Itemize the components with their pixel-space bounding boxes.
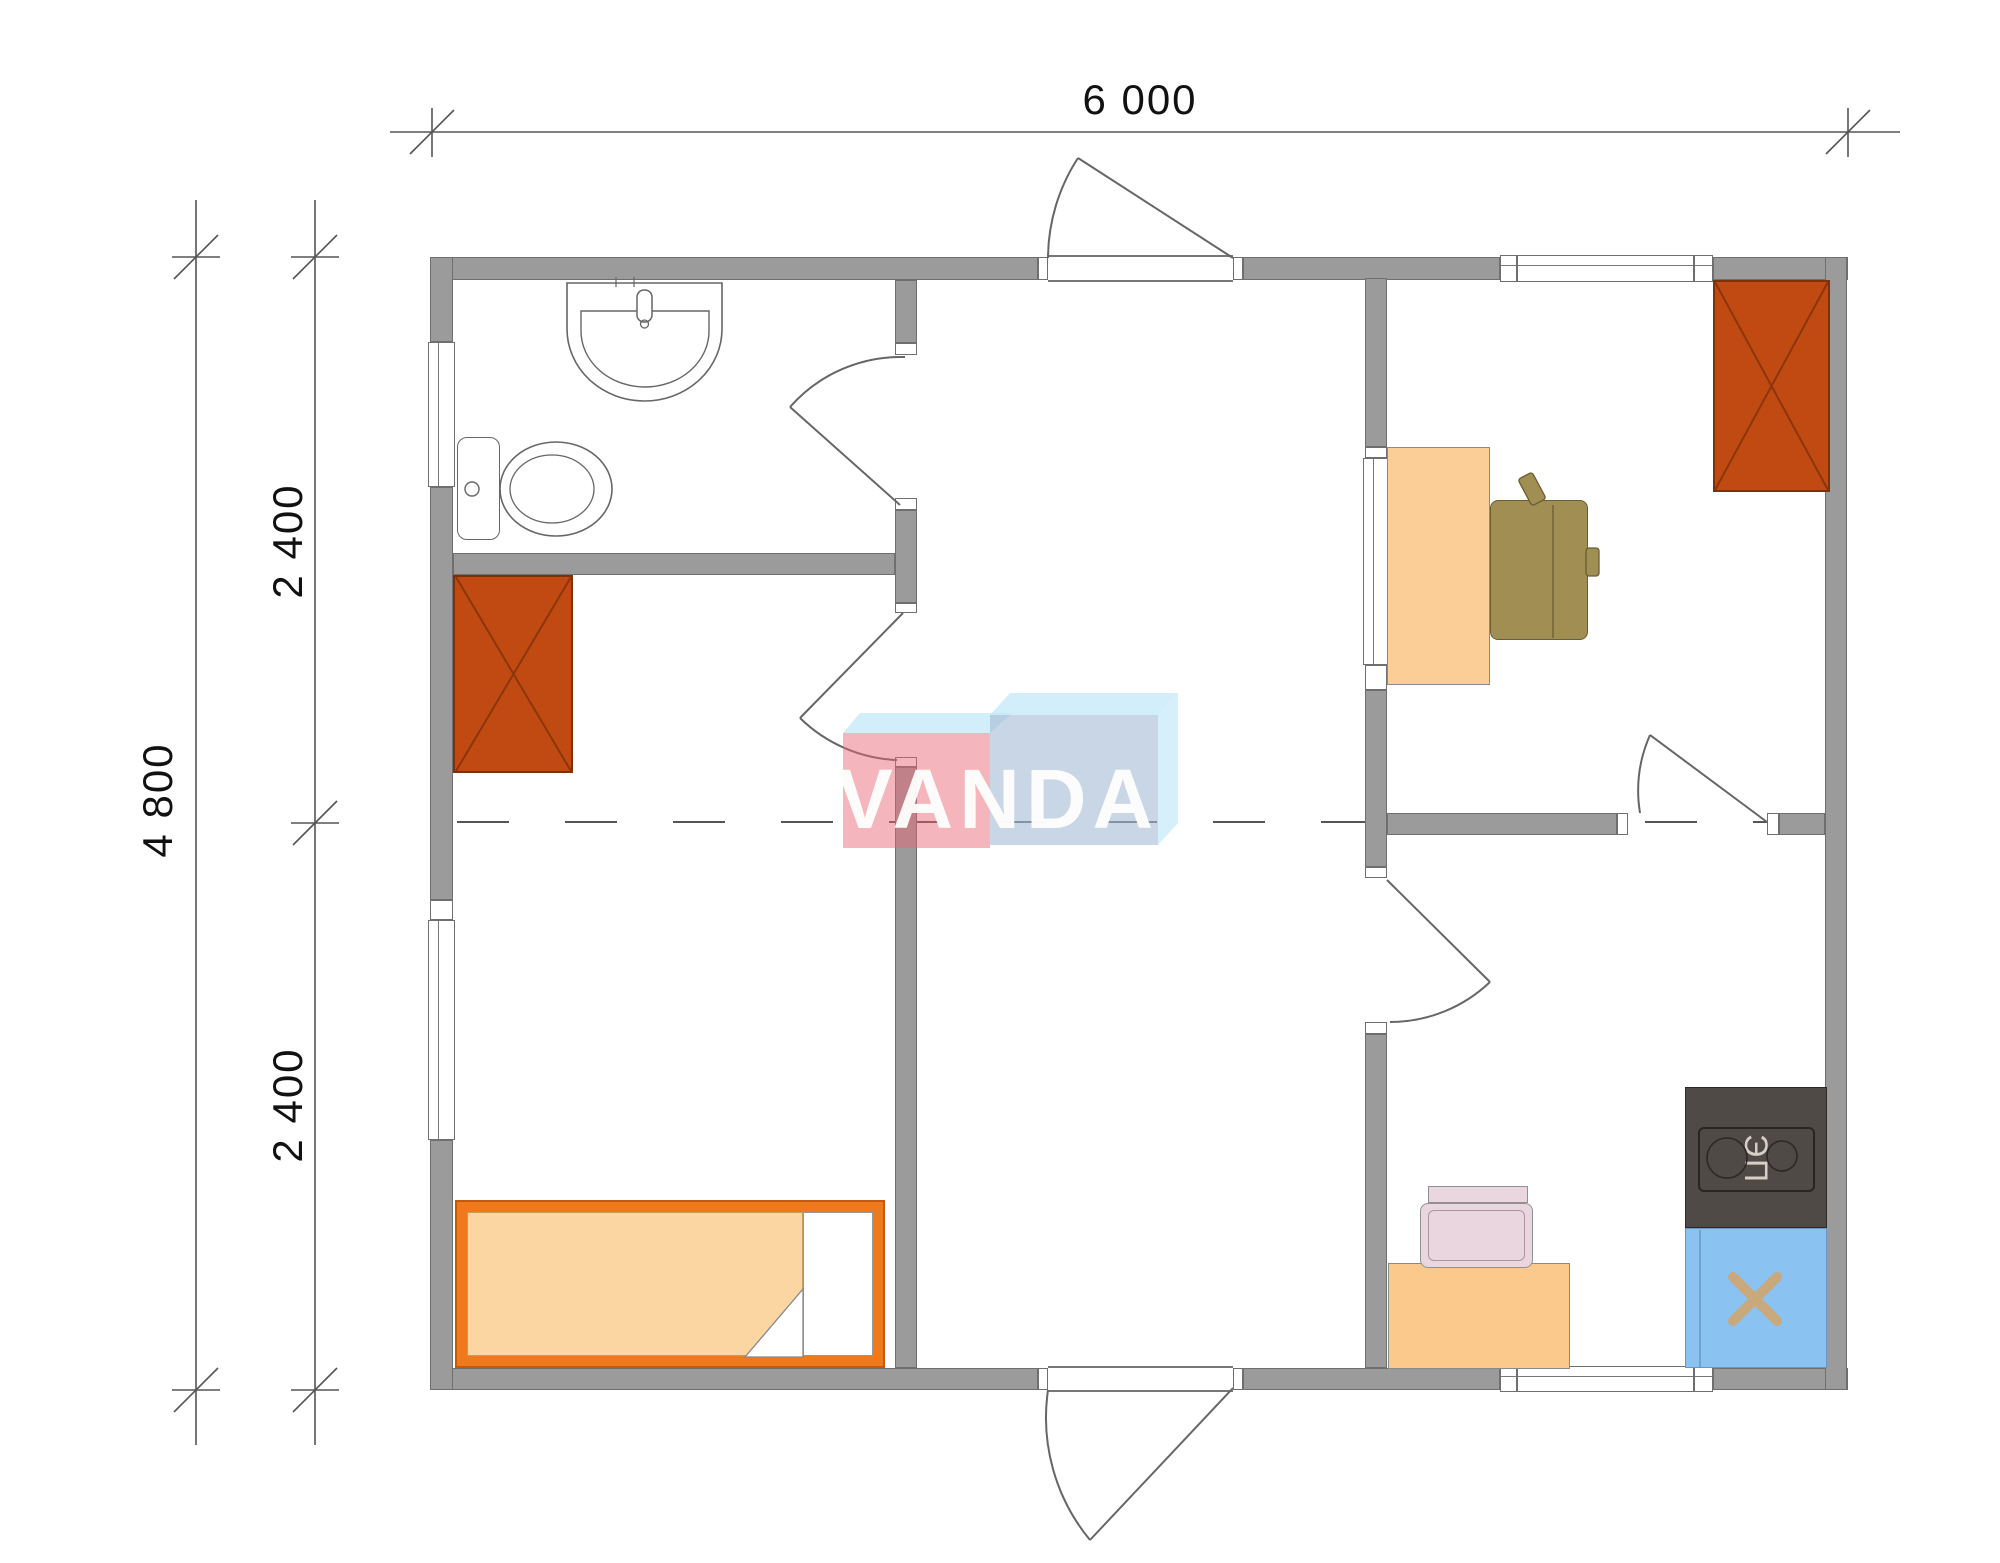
dim-width-label: 6 000 (1040, 76, 1240, 124)
dimension-lines (0, 0, 2000, 1563)
dim-height-upper-label: 2 400 (263, 441, 313, 641)
dim-height-total-label: 4 800 (133, 700, 183, 900)
dim-height-lower-label: 2 400 (263, 1005, 313, 1205)
floor-plan-canvas: ЭП (0, 0, 2000, 1563)
